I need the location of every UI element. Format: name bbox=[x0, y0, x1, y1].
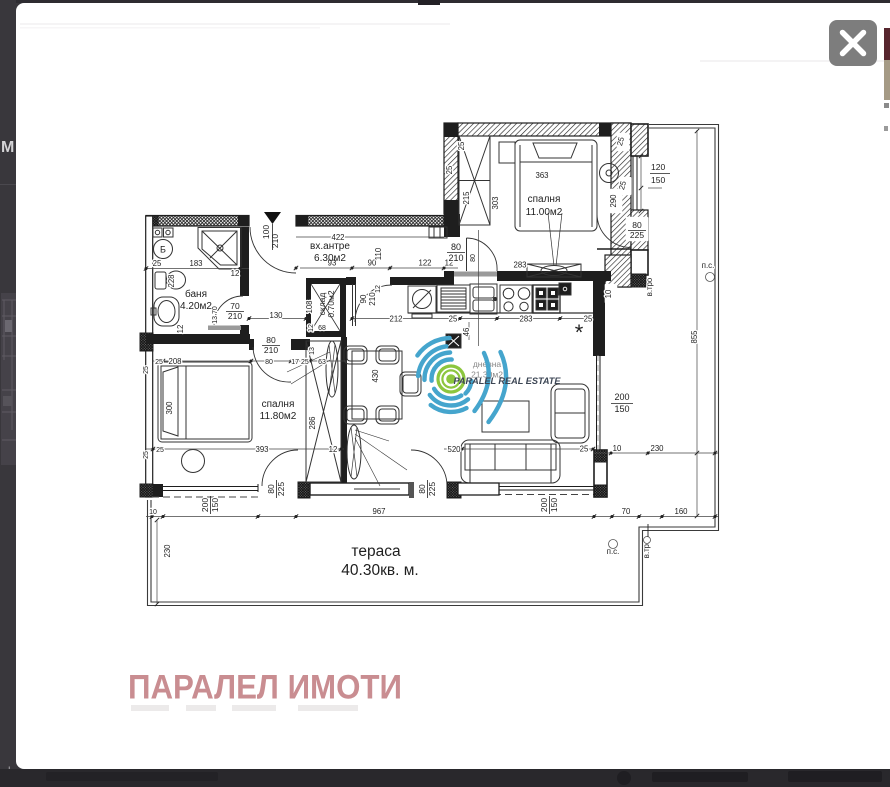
svg-text:70: 70 bbox=[230, 301, 240, 311]
svg-text:10: 10 bbox=[149, 509, 157, 516]
svg-text:160: 160 bbox=[674, 507, 688, 516]
svg-text:11.00м2: 11.00м2 bbox=[526, 207, 563, 218]
svg-text:228: 228 bbox=[167, 274, 176, 287]
svg-text:80: 80 bbox=[417, 484, 427, 494]
svg-text:спалня: спалня bbox=[262, 399, 295, 410]
svg-text:68: 68 bbox=[318, 325, 326, 332]
svg-text:12: 12 bbox=[375, 285, 382, 293]
svg-text:25: 25 bbox=[143, 451, 150, 459]
svg-text:210: 210 bbox=[264, 345, 278, 355]
svg-text:12: 12 bbox=[308, 324, 315, 332]
svg-text:в.тр.: в.тр. bbox=[642, 542, 651, 558]
svg-text:М: М bbox=[1, 139, 14, 156]
svg-text:п.с.: п.с. bbox=[702, 261, 715, 270]
svg-text:в.тро: в.тро bbox=[645, 277, 654, 296]
svg-text:210: 210 bbox=[448, 253, 463, 263]
svg-text:25: 25 bbox=[445, 165, 454, 174]
svg-text:25: 25 bbox=[580, 445, 589, 454]
svg-text:225: 225 bbox=[276, 482, 286, 496]
svg-text:вх.антре: вх.антре bbox=[310, 241, 350, 252]
svg-text:210: 210 bbox=[270, 234, 280, 248]
svg-text:210: 210 bbox=[228, 311, 242, 321]
svg-text:80: 80 bbox=[266, 335, 276, 345]
svg-text:150: 150 bbox=[614, 404, 629, 414]
svg-text:183: 183 bbox=[189, 259, 202, 268]
svg-text:6.30м2: 6.30м2 bbox=[314, 253, 346, 264]
svg-text:63: 63 bbox=[318, 359, 326, 366]
svg-text:спалня: спалня bbox=[528, 194, 561, 205]
svg-text:230: 230 bbox=[163, 544, 172, 558]
svg-text:283: 283 bbox=[513, 261, 526, 270]
svg-text:тераса: тераса bbox=[351, 543, 401, 560]
svg-text:225: 225 bbox=[630, 230, 644, 240]
svg-text:208: 208 bbox=[168, 357, 181, 366]
svg-text:*: * bbox=[575, 320, 584, 345]
svg-text:230: 230 bbox=[650, 444, 664, 453]
svg-text:0.70м2: 0.70м2 bbox=[326, 290, 336, 317]
svg-text:80: 80 bbox=[265, 359, 273, 366]
svg-text:300: 300 bbox=[165, 401, 174, 415]
svg-text:286: 286 bbox=[308, 416, 317, 429]
svg-text:25: 25 bbox=[155, 359, 163, 366]
svg-text:363: 363 bbox=[535, 171, 548, 180]
svg-text:303: 303 bbox=[491, 196, 500, 209]
svg-text:108: 108 bbox=[305, 300, 314, 313]
svg-text:25: 25 bbox=[156, 447, 164, 454]
svg-text:150: 150 bbox=[549, 498, 559, 512]
svg-text:25: 25 bbox=[457, 141, 466, 150]
svg-text:12: 12 bbox=[176, 325, 185, 334]
svg-text:25: 25 bbox=[153, 259, 162, 268]
svg-text:13: 13 bbox=[309, 347, 316, 355]
svg-text:70: 70 bbox=[622, 507, 631, 516]
svg-text:17 25: 17 25 bbox=[291, 359, 309, 366]
svg-text:150: 150 bbox=[651, 175, 665, 185]
svg-text:967: 967 bbox=[372, 507, 385, 516]
svg-text:150: 150 bbox=[210, 498, 220, 512]
svg-text:200: 200 bbox=[614, 392, 629, 402]
svg-text:520: 520 bbox=[447, 445, 461, 454]
svg-text:430: 430 bbox=[371, 369, 380, 383]
svg-text:130: 130 bbox=[269, 311, 283, 320]
svg-text:25: 25 bbox=[449, 315, 458, 324]
svg-text:11.80м2: 11.80м2 bbox=[260, 411, 297, 422]
svg-text:40.30кв. м.: 40.30кв. м. bbox=[341, 562, 418, 579]
svg-text:215: 215 bbox=[462, 191, 471, 205]
svg-text:46: 46 bbox=[462, 328, 471, 337]
svg-text:212: 212 bbox=[389, 315, 402, 324]
svg-text:80: 80 bbox=[266, 484, 276, 494]
svg-text:80: 80 bbox=[451, 242, 461, 252]
svg-text:80: 80 bbox=[470, 254, 477, 262]
svg-text:225: 225 bbox=[427, 482, 437, 496]
svg-text:120: 120 bbox=[651, 162, 665, 172]
svg-text:ПАРАЛЕЛ ИМОТИ: ПАРАЛЕЛ ИМОТИ bbox=[128, 669, 402, 707]
svg-text:Б: Б bbox=[160, 245, 166, 255]
svg-text:283: 283 bbox=[519, 315, 532, 324]
svg-text:PARALEL REAL ESTATE: PARALEL REAL ESTATE bbox=[454, 376, 562, 387]
svg-text:290: 290 bbox=[609, 194, 618, 208]
svg-text:10: 10 bbox=[613, 444, 622, 453]
svg-text:122: 122 bbox=[418, 259, 431, 268]
svg-text:25: 25 bbox=[584, 315, 593, 324]
svg-text:855: 855 bbox=[690, 330, 699, 344]
svg-text:12: 12 bbox=[329, 445, 338, 454]
svg-text:80: 80 bbox=[632, 220, 642, 230]
svg-text:13 70: 13 70 bbox=[212, 306, 219, 324]
svg-text:12: 12 bbox=[231, 269, 240, 278]
svg-text:25: 25 bbox=[143, 366, 150, 374]
svg-text:393: 393 bbox=[255, 445, 268, 454]
svg-text:4.20м2: 4.20м2 bbox=[180, 301, 212, 312]
svg-text:200: 200 bbox=[539, 498, 549, 512]
svg-text:200: 200 bbox=[200, 498, 210, 512]
svg-text:10: 10 bbox=[604, 289, 613, 298]
svg-text:баня: баня bbox=[185, 288, 207, 300]
svg-text:110: 110 bbox=[374, 247, 383, 260]
svg-text:90: 90 bbox=[359, 294, 368, 303]
